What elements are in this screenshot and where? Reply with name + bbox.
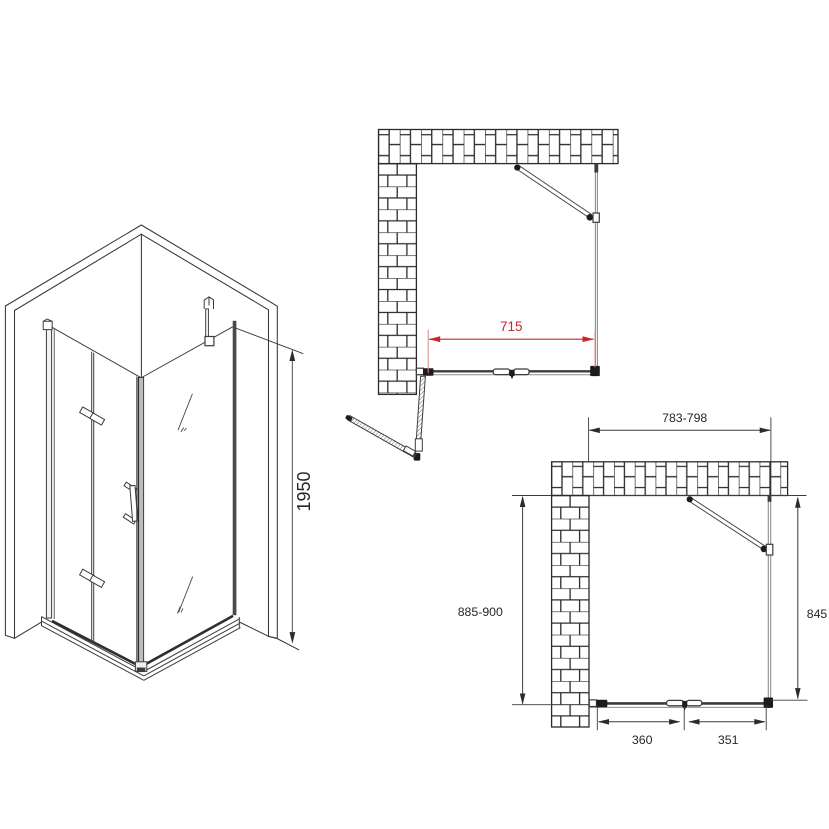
svg-text:783-798: 783-798: [662, 411, 707, 425]
svg-text:885-900: 885-900: [458, 605, 503, 619]
svg-text:1950: 1950: [294, 471, 314, 511]
svg-text:360: 360: [632, 733, 653, 747]
svg-text:351: 351: [718, 733, 739, 747]
svg-text:715: 715: [500, 319, 523, 334]
svg-text:845: 845: [807, 607, 828, 621]
